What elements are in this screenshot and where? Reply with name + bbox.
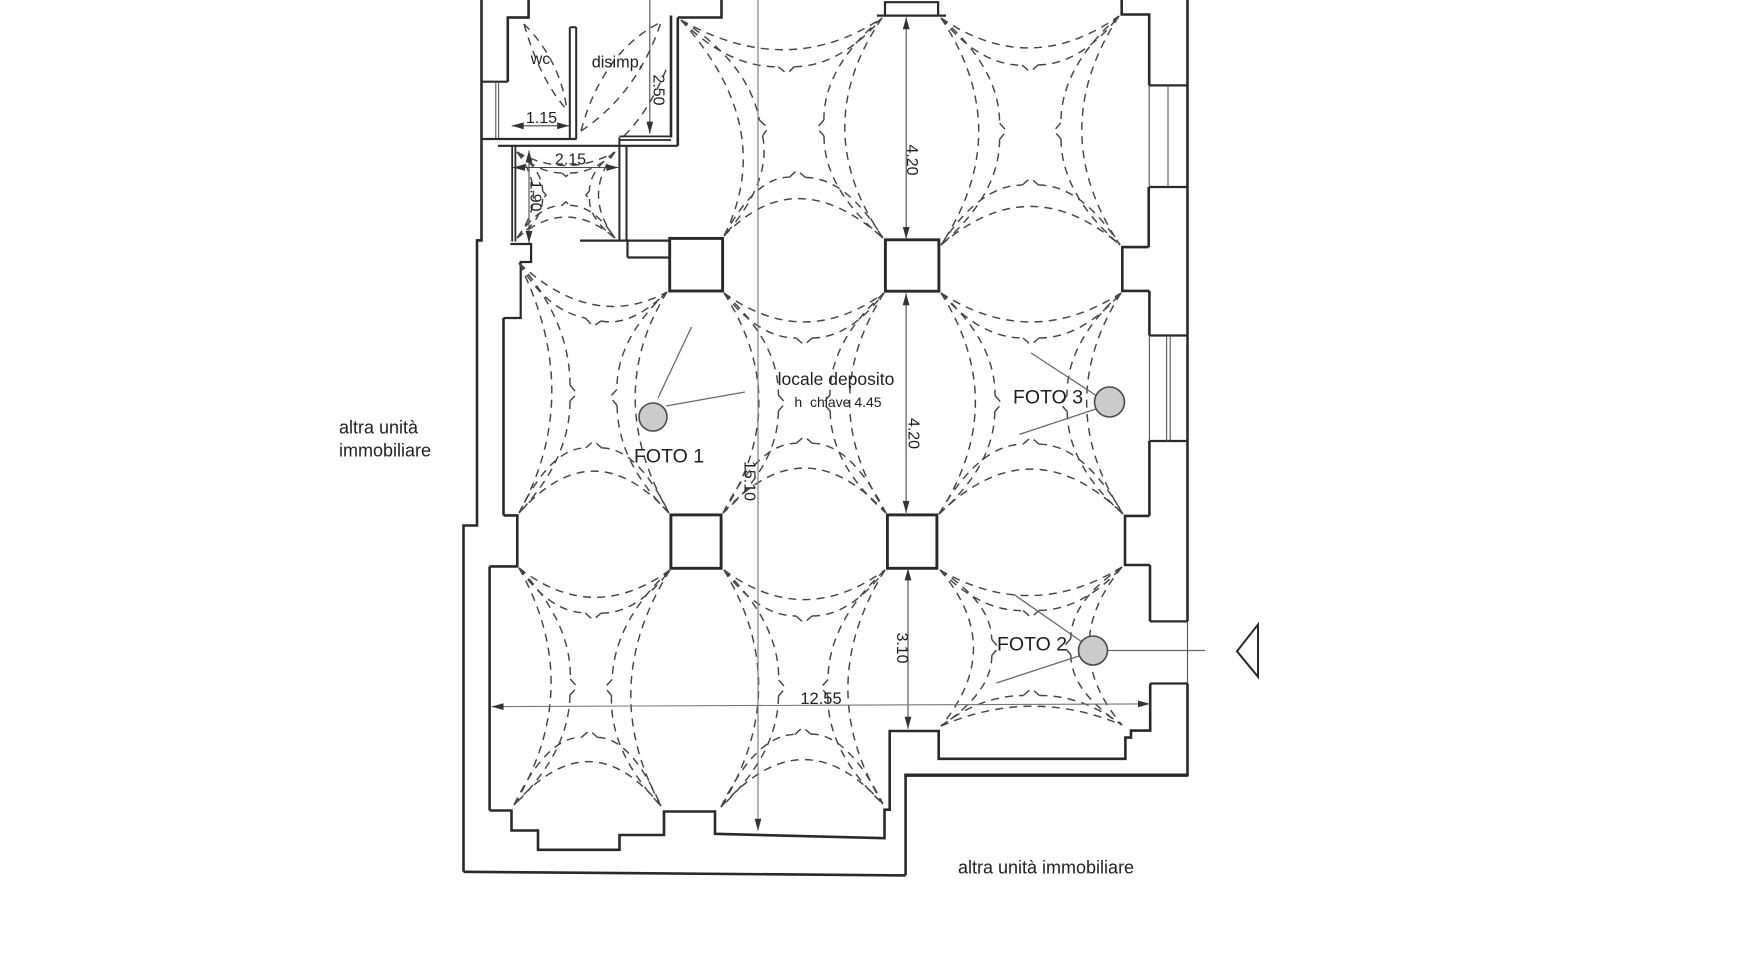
svg-text:FOTO 3: FOTO 3 <box>1013 387 1083 409</box>
svg-text:FOTO 1: FOTO 1 <box>634 446 704 468</box>
svg-text:1.15: 1.15 <box>526 110 557 127</box>
svg-text:2.50: 2.50 <box>650 74 667 105</box>
svg-text:wc: wc <box>530 51 551 68</box>
svg-text:altra unità immobiliare: altra unità immobiliare <box>958 858 1134 878</box>
svg-text:12.55: 12.55 <box>800 690 841 708</box>
svg-text:FOTO 2: FOTO 2 <box>997 634 1067 656</box>
svg-text:altra unità: altra unità <box>339 418 419 438</box>
svg-text:immobiliare: immobiliare <box>339 441 431 461</box>
svg-text:4.20: 4.20 <box>905 418 922 449</box>
svg-text:15.10: 15.10 <box>741 461 758 501</box>
svg-text:2.15: 2.15 <box>555 152 586 169</box>
svg-text:disimp.: disimp. <box>592 54 644 72</box>
svg-text:4.20: 4.20 <box>903 144 920 175</box>
svg-text:h chiave 4.45: h chiave 4.45 <box>794 394 881 410</box>
svg-text:3.10: 3.10 <box>893 632 910 663</box>
svg-text:1.90: 1.90 <box>527 180 544 211</box>
svg-text:locale deposito: locale deposito <box>778 369 895 389</box>
